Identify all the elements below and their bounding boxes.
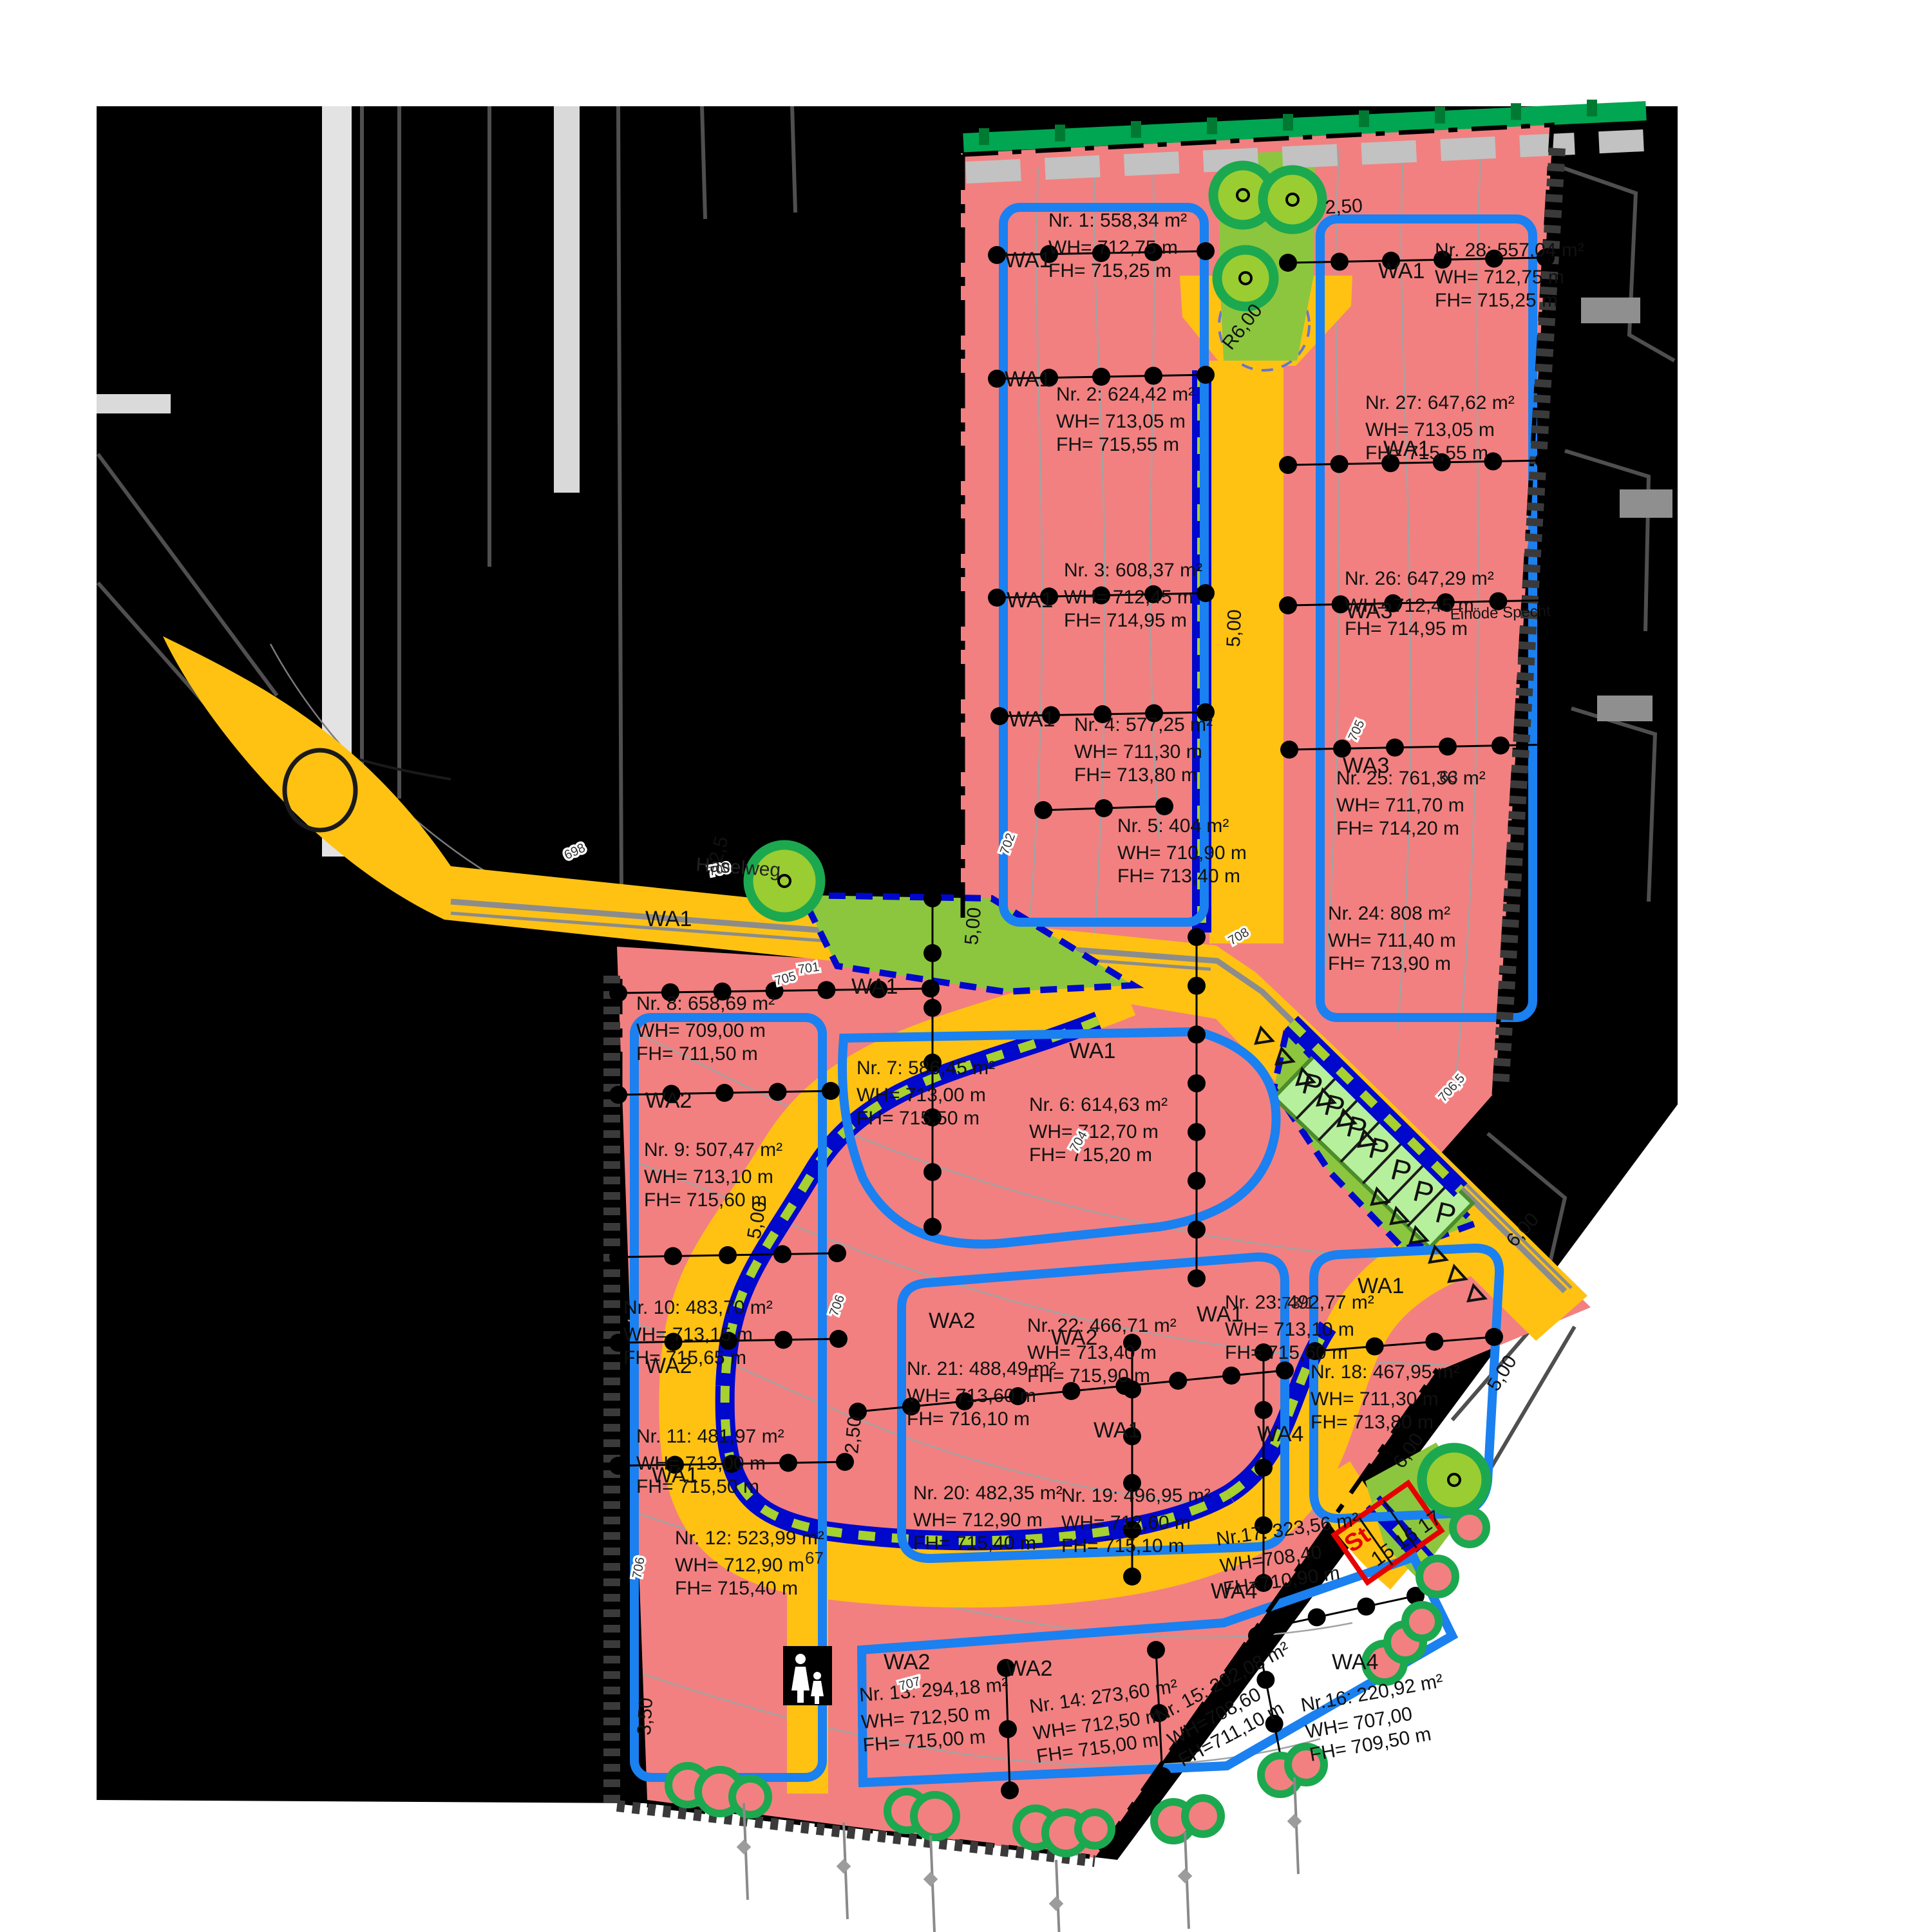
separator-dot [1095,799,1113,817]
zone-label: WA2 [884,1650,930,1674]
zone-label: WA2 [645,1088,692,1113]
zone-label: WA3 [1346,599,1392,623]
lot-4-fh: FH= 713,80 m [1074,764,1197,786]
zone-label: WA1 [1069,1039,1115,1063]
lot-23-fh: FH= 715,60 m [1225,1342,1348,1363]
tree-icon [1185,1798,1221,1834]
lot-4-label: Nr. 4: 577,25 m² [1074,714,1213,735]
zone-label: WA1 [851,974,898,999]
lot-28-wh: WH= 712,75 m [1435,267,1564,288]
zone-label: WA2 [645,1354,692,1378]
lot-26-label: Nr. 26: 647,29 m² [1345,568,1494,589]
zone-label: WA4 [1211,1579,1257,1604]
dimension-label: 5,00 [1223,609,1245,648]
hedge-notch [1055,125,1065,142]
separator-dot [779,1454,797,1472]
zone-label: WA1 [1378,259,1425,283]
lot-9-wh: WH= 713,10 m [644,1166,773,1188]
zone-label: WA1 [1005,248,1051,272]
separator-dot [836,1453,854,1471]
separator-dot [1034,801,1052,819]
separator-dot [1255,1459,1273,1477]
lot-27-label: Nr. 27: 647,62 m² [1365,392,1515,413]
survey-marker [1287,1814,1302,1829]
zone-label: WA1 [1094,1418,1140,1443]
lot-25-wh: WH= 711,70 m [1336,795,1464,816]
separator-dot [609,1086,627,1104]
separator-dot [1147,1641,1165,1659]
zone-label: WA1 [1007,588,1053,612]
lot-label-group: Nr. 1: 558,34 m²WH= 712,75 mFH= 715,25 m [1048,210,1187,281]
lot-1-fh: FH= 715,25 m [1048,260,1171,281]
separator-dot [1155,797,1173,815]
site-plan-canvas: St 15 16 17 Nr. 1: 558,34 m²WH= 712,75 m… [0,0,1932,1932]
lot-label-group: Nr. 8: 658,69 m²WH= 709,00 mFH= 711,50 m [636,993,775,1065]
separator-dot [1144,367,1162,385]
hedge-notch [1435,107,1445,124]
lot-2-fh: FH= 715,55 m [1056,434,1179,455]
separator-dot [775,1331,793,1349]
separator-dot [828,1244,846,1262]
zone-label: WA1 [1383,437,1430,461]
tree-icon [914,1795,956,1837]
separator-dot [1544,735,1562,753]
lot-label-group: Nr. 5: 404 m²WH= 710,90 mFH= 713,40 m [1117,815,1247,887]
zone-label: WA4 [1332,1650,1378,1674]
separator-dot [1276,1361,1294,1379]
parcel-number: 73/1 [1282,1293,1314,1312]
tree-icon [1422,1448,1486,1512]
separator-dot [1485,1328,1503,1346]
survey-marker [737,1840,752,1855]
lot-11-label: Nr. 11: 481,97 m² [636,1426,784,1447]
separator-dot [1153,1767,1171,1785]
separator-dot [1439,737,1457,755]
tree-icon [1263,170,1322,229]
separator-dot [1188,977,1206,995]
separator-dot [1331,252,1349,270]
pedestrian-icon [783,1646,832,1705]
lot-3-label: Nr. 3: 608,37 m² [1064,560,1202,581]
separator-dot [923,999,942,1017]
tree-icon [1217,250,1274,307]
lot-20-fh: FH= 715,40 m [913,1533,1036,1554]
zone-label: WA1 [1358,1274,1404,1298]
zone-label: WA2 [1006,1656,1052,1681]
parcel-number: 63 [1439,767,1458,786]
separator-dot [1188,1172,1206,1190]
separator-dot [1279,254,1297,272]
separator-dot [923,944,942,962]
zone-label: WA1 [1197,1302,1243,1327]
lot-9-label: Nr. 9: 507,47 m² [644,1139,782,1160]
hedge-notch [1283,114,1293,131]
lot-24-label: Nr. 24: 808 m² [1328,903,1450,924]
lot-8-fh: FH= 711,50 m [636,1043,758,1065]
lot-2-label: Nr. 2: 624,42 m² [1056,384,1195,405]
separator-dot [1535,451,1553,469]
lot-label-group: Nr. 3: 608,37 m²WH= 712,45 mFH= 714,95 m [1064,560,1202,631]
separator-dot [1366,1338,1384,1356]
separator-dot [1279,456,1297,474]
lot-10-label: Nr. 10: 483,70 m² [623,1297,773,1318]
survey-marker [837,1859,851,1874]
dimension-label: 3,50 [634,1697,657,1736]
separator-dot [1425,1332,1443,1350]
lot-25-fh: FH= 714,20 m [1336,818,1459,839]
lot-label-group: Nr. 2: 624,42 m²WH= 713,05 mFH= 715,55 m [1056,384,1195,455]
lot-24-fh: FH= 713,90 m [1328,953,1451,974]
parcel-number: 67 [805,1548,824,1567]
site-plan: St 15 16 17 Nr. 1: 558,34 m²WH= 712,75 m… [0,0,1932,1932]
lot-6-fh: FH= 715,20 m [1029,1144,1152,1166]
hedge-notch [1131,121,1141,138]
lot-5-fh: FH= 713,40 m [1117,866,1240,887]
lot-21-wh: WH= 713,60 m [907,1385,1036,1406]
separator-dot [817,981,835,999]
tree-icon [1078,1812,1112,1846]
lot-22-label: Nr. 22: 466,71 m² [1027,1315,1177,1336]
tree-icon [1453,1511,1486,1544]
lot-10-wh: WH= 713,15 m [623,1324,753,1345]
separator-dot [773,1245,791,1264]
separator-dot [923,1163,942,1181]
separator-dot [609,1248,627,1266]
zone-label: WA2 [929,1309,975,1333]
lot-2-wh: WH= 713,05 m [1056,411,1186,432]
separator-dot [1188,1269,1206,1287]
existing-path [554,106,580,493]
separator-dot [923,1218,942,1236]
separator-dot [1357,1598,1375,1616]
zone-label: WA2 [1051,1325,1097,1350]
lot-19-label: Nr. 19: 496,95 m² [1061,1485,1211,1506]
lot-22-fh: FH= 715,90 m [1027,1365,1150,1387]
lot-19-wh: WH= 712,60 m [1061,1512,1191,1533]
lot-12-wh: WH= 712,90 m [675,1555,804,1576]
lot-28-fh: FH= 715,25 m [1435,290,1558,311]
separator-dot [1001,1781,1019,1799]
lot-12-label: Nr. 12: 523,99 m² [675,1528,824,1549]
lot-8-wh: WH= 709,00 m [636,1020,766,1041]
separator-dot [1197,584,1215,602]
survey-marker [1178,1869,1193,1884]
lot-7-wh: WH= 713,00 m [857,1084,986,1106]
dimension-label: 5,00 [961,907,985,946]
separator-dot [664,1247,682,1265]
hedge-notch [1359,110,1369,127]
tree-icon [748,845,820,917]
lot-1-label: Nr. 1: 558,34 m² [1048,210,1187,231]
separator-dot [922,980,940,998]
lot-4-wh: WH= 711,30 m [1074,741,1202,762]
separator-dot [769,1083,787,1101]
lot-12-fh: FH= 715,40 m [675,1578,798,1599]
lot-label-group: Nr. 24: 808 m²WH= 711,40 mFH= 713,90 m [1328,903,1456,974]
tree-icon [1405,1605,1439,1638]
separator-dot [1123,1567,1141,1586]
lot-5-wh: WH= 710,90 m [1117,842,1247,864]
zone-label: WA1 [1005,367,1051,392]
lot-3-fh: FH= 714,95 m [1064,610,1187,631]
separator-dot [609,1457,627,1475]
lot-label-group: Nr.16: 220,92 m²WH= 707,00FH= 709,50 m [1299,1671,1453,1766]
separator-dot [829,1330,848,1348]
hedge-notch [1587,100,1597,117]
tree-icon [732,1779,768,1815]
separator-dot [999,1720,1017,1738]
tree-icon [1419,1558,1455,1595]
hedge-notch [1511,103,1521,120]
separator-dot [1188,1123,1206,1141]
separator-dot [1188,1025,1206,1043]
separator-dot [988,589,1006,607]
lot-5-label: Nr. 5: 404 m² [1117,815,1229,837]
lot-18-label: Nr. 18: 467,95 m² [1311,1361,1460,1383]
survey-marker [1049,1897,1064,1911]
zone-label: WA1 [645,907,692,931]
separator-dot [715,1084,734,1102]
hedge-notch [979,128,989,145]
separator-dot [1222,1367,1240,1385]
separator-dot [988,246,1006,264]
dimension-label: 2,50 [1325,195,1363,218]
separator-dot [609,984,627,1002]
lot-7-label: Nr. 7: 586,45 m² [857,1057,995,1079]
lot-20-wh: WH= 712,90 m [913,1510,1043,1531]
lot-label-group: Nr. 4: 577,25 m²WH= 711,30 mFH= 713,80 m [1074,714,1213,786]
separator-dot [1169,1372,1187,1390]
lot-18-fh: FH= 713,80 m [1311,1412,1434,1433]
separator-dot [923,889,942,907]
separator-dot [1255,1401,1273,1419]
separator-dot [1331,455,1349,473]
zone-label: WA3 [1343,753,1389,778]
separator-dot [1188,928,1206,946]
lot-19-fh: FH= 715,10 m [1061,1535,1184,1557]
separator-dot [1197,242,1215,260]
lot-23-wh: WH= 713,10 m [1225,1319,1354,1340]
dimension-label: 2,50 [841,1416,866,1455]
separator-dot [1197,366,1215,384]
separator-dot [990,707,1009,725]
zone-label: WA1 [652,1463,698,1488]
lot-24-wh: WH= 711,40 m [1328,930,1456,951]
separator-dot [822,1082,840,1100]
lot-6-wh: WH= 712,70 m [1029,1121,1159,1142]
separator-dot [1092,368,1110,386]
separator-dot [1308,1608,1326,1626]
separator-dot [1492,737,1510,755]
survey-line [1056,1860,1060,1932]
survey-marker [923,1872,938,1887]
zone-label: WA4 [1257,1422,1303,1446]
lot-3-wh: WH= 712,45 m [1064,587,1193,608]
zone-label: WA1 [1009,707,1055,732]
separator-dot [1188,1220,1206,1238]
lot-7-fh: FH= 715,50 m [857,1108,980,1129]
separator-dot [719,1246,737,1264]
lot-label-group: Nr. 6: 614,63 m²WH= 712,70 mFH= 715,20 m [1029,1094,1168,1166]
lot-28-label: Nr. 28: 557,04 m² [1435,240,1584,261]
separator-dot [1279,596,1297,614]
lot-21-fh: FH= 716,10 m [907,1408,1030,1430]
lot-18-wh: WH= 711,30 m [1311,1388,1439,1410]
lot-label-group: Nr. 9: 507,47 m²WH= 713,10 mFH= 715,60 m [644,1139,782,1211]
separator-dot [1188,1074,1206,1092]
contour-label: 701 [797,960,820,977]
lot-6-label: Nr. 6: 614,63 m² [1029,1094,1168,1115]
separator-dot [1280,741,1298,759]
lot-20-label: Nr. 20: 482,35 m² [913,1482,1063,1504]
lot-label-group: Nr. 7: 586,45 m²WH= 713,00 mFH= 715,50 m [857,1057,995,1129]
hedge-notch [1207,117,1217,134]
lot-8-label: Nr. 8: 658,69 m² [636,993,775,1014]
separator-dot [1258,1619,1276,1637]
place-name-label: Einöde Specht [1450,603,1551,623]
lot-1-wh: WH= 712,75 m [1048,237,1178,258]
separator-dot [988,370,1006,388]
